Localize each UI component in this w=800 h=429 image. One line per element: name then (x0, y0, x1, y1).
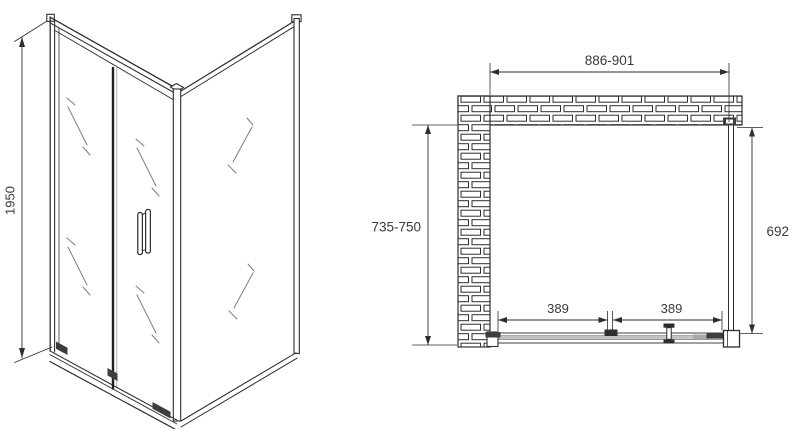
reflection-mark (136, 286, 159, 343)
dimension-side-panel (737, 128, 763, 334)
corner-profile (724, 331, 740, 348)
dimension-height-1950 (15, 19, 53, 363)
arrow-right-icon (599, 317, 608, 323)
corner-post (173, 89, 180, 421)
glass-reflection-marks (67, 98, 254, 343)
reflection-mark (229, 264, 254, 319)
left-roller-icon (56, 342, 68, 356)
arrow-right-icon (720, 69, 729, 75)
arrow-left-icon (490, 69, 499, 75)
arrow-up-icon (749, 128, 755, 137)
reflection-mark (136, 139, 159, 196)
arrow-down-icon (19, 348, 25, 358)
drawing-canvas: 1950 (0, 0, 800, 429)
door-frame (47, 14, 184, 429)
depth-dimension-label: 735-750 (371, 220, 421, 235)
left-clamp-icon (486, 332, 501, 338)
door-left-dimension-label: 389 (547, 301, 569, 316)
arrow-up-icon (425, 125, 431, 134)
reflection-mark (67, 98, 90, 155)
arrow-down-icon (425, 336, 431, 345)
dimension-depth (412, 125, 457, 345)
plan-view: 886-901 735-750 692 389 (371, 53, 789, 347)
reflection-mark (228, 118, 253, 173)
wall-left (458, 96, 490, 347)
side-panel-plan (723, 118, 736, 334)
arrow-down-icon (749, 325, 755, 334)
center-stop-icon (605, 330, 618, 337)
side-panel-dimension-label: 692 (767, 224, 790, 239)
door-handle-iso (138, 210, 151, 255)
technical-drawing: 1950 (0, 0, 800, 429)
side-glass-panel (181, 15, 301, 427)
arrow-left-icon (613, 317, 622, 323)
reflection-mark (67, 238, 90, 295)
height-dimension-label: 1950 (3, 186, 18, 215)
right-clamp-icon (707, 333, 724, 339)
door-right-dimension-label: 389 (661, 301, 683, 316)
arrow-left-icon (498, 317, 507, 323)
iso-view: 1950 (3, 14, 302, 429)
width-dimension-label: 886-901 (585, 53, 635, 68)
wall-top (458, 96, 742, 125)
roller-carriage-icon (693, 335, 707, 340)
arrow-right-icon (713, 317, 722, 323)
sliding-door-panel (108, 66, 118, 389)
